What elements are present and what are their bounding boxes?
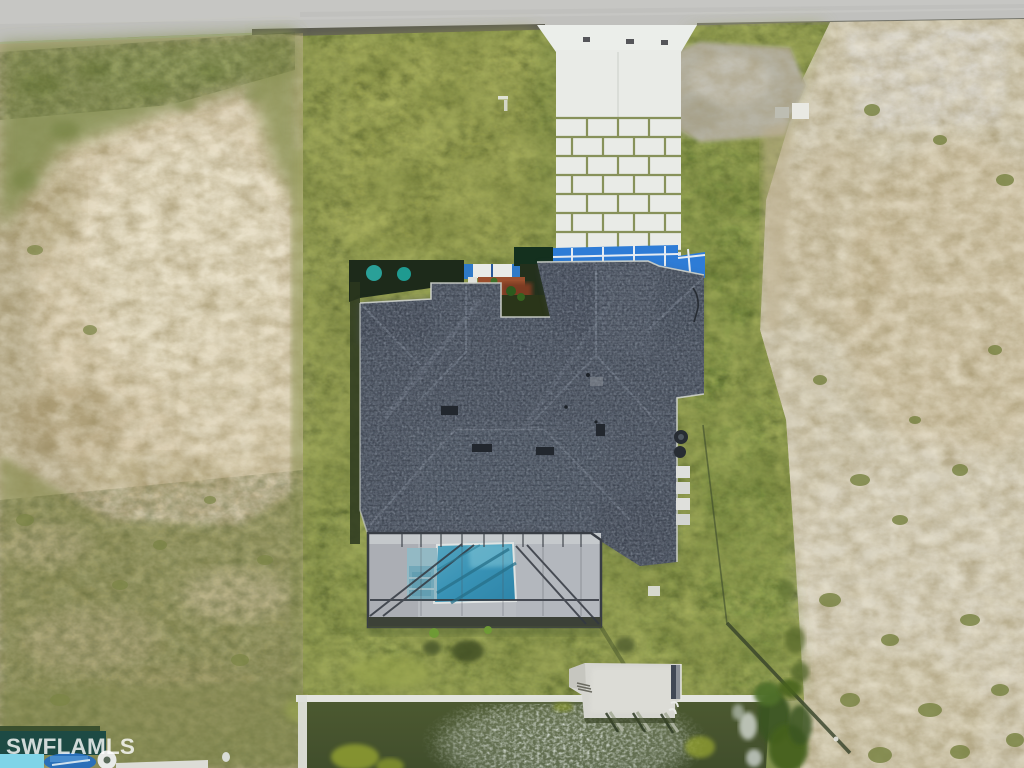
svg-text:SWFLAMLS: SWFLAMLS (6, 734, 135, 759)
